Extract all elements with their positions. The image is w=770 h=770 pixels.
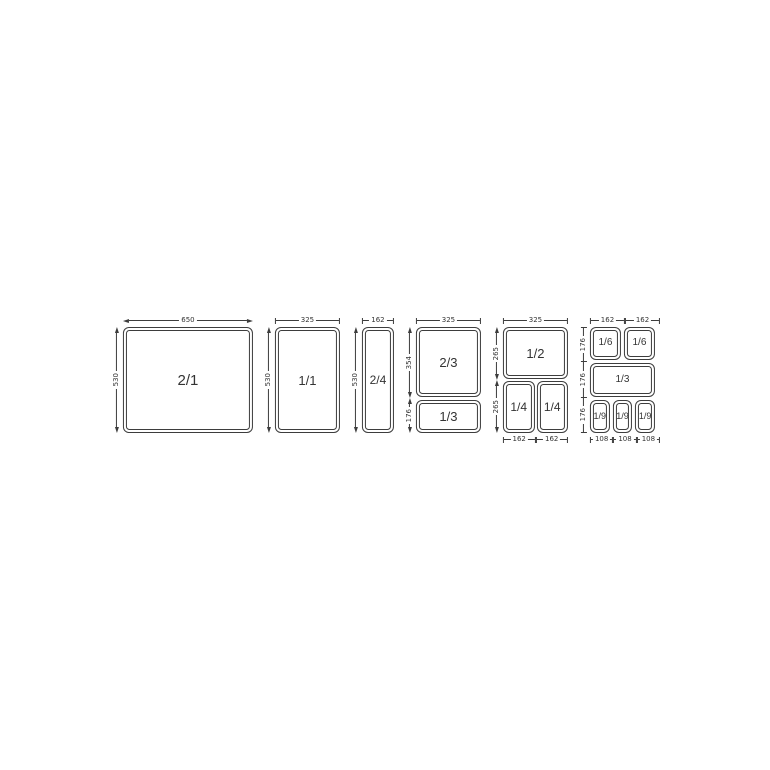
dimension-width-108: 108 <box>637 433 660 446</box>
dimension-label: 176 <box>406 407 413 424</box>
dimension-line <box>268 389 269 427</box>
dimension-label: 176 <box>580 336 587 353</box>
figure-gn-2-1: 650 530 2/1 <box>110 314 253 446</box>
arrow-down-icon <box>266 427 270 433</box>
pan-area: 2/3 1/3 <box>416 327 481 433</box>
pan-2-3: 2/3 <box>416 327 481 397</box>
dimension-tick <box>567 318 568 324</box>
dimension-label: 265 <box>493 398 500 415</box>
dimension-width-108: 108 <box>590 433 613 446</box>
dimension-line <box>496 386 497 398</box>
dimension-label: 162 <box>369 317 386 324</box>
dimension-line <box>544 320 567 321</box>
pan-size-label: 1/2 <box>526 347 544 360</box>
dimension-height-265: 265 <box>490 327 503 380</box>
top-dimension-row: 325 <box>416 314 481 327</box>
pan-size-label: 2/1 <box>178 373 199 388</box>
pan-size-label: 1/4 <box>544 401 561 413</box>
dimension-tick <box>567 437 568 443</box>
dimension-label: 530 <box>352 371 359 388</box>
dimension-line <box>496 333 497 345</box>
pan-1-4: 1/4 <box>503 381 535 433</box>
dimension-line <box>457 320 480 321</box>
dimension-width-162: 162 <box>362 314 394 327</box>
dimension-line <box>409 333 410 354</box>
dimension-width-162: 162 <box>535 433 568 446</box>
dimension-line <box>417 320 440 321</box>
dimension-height-176: 176 <box>577 362 590 397</box>
dimension-label: 176 <box>580 406 587 423</box>
dimension-tick <box>480 318 481 324</box>
pan-size-label: 1/4 <box>510 401 527 413</box>
dimension-line <box>626 320 634 321</box>
pan-area: 1/1 <box>275 327 340 433</box>
left-dimension-column: 530 <box>110 327 123 433</box>
pan-2-1: 2/1 <box>123 327 253 433</box>
dimension-line <box>583 388 584 396</box>
dimension-line <box>197 320 247 321</box>
dimension-line <box>116 333 117 371</box>
arrow-down-icon <box>114 427 118 433</box>
arrow-down-icon <box>494 427 498 433</box>
pan-1-3: 1/3 <box>590 363 655 398</box>
pan-1-9: 1/9 <box>590 400 610 433</box>
top-dimension-row: 162 162 <box>590 314 660 327</box>
left-dimension-column: 265 265 <box>490 327 503 433</box>
arrow-right-icon <box>247 319 253 323</box>
dimension-tick <box>393 318 394 324</box>
pan-area: 2/1 <box>123 327 253 433</box>
left-dimension-column: 176 176 176 <box>577 327 590 433</box>
dimension-line <box>583 398 584 406</box>
pan-row: 1/4 1/4 <box>503 381 568 433</box>
dimension-height-176: 176 <box>577 398 590 433</box>
dimension-width-108: 108 <box>613 433 636 446</box>
dimension-line <box>583 328 584 336</box>
figure-gn-2-4: 162 530 2/4 <box>349 314 394 446</box>
dimension-height-530: 530 <box>349 327 362 433</box>
dimension-line <box>496 415 497 427</box>
top-dimension-row: 325 <box>275 314 340 327</box>
dimension-label: 325 <box>440 317 457 324</box>
left-dimension-column: 530 <box>262 327 275 433</box>
pan-1-2: 1/2 <box>503 327 568 379</box>
dimension-line <box>276 320 299 321</box>
figure-gn-2-3-1-3: 325 354 176 <box>403 314 481 446</box>
dimension-width-162: 162 <box>590 314 625 327</box>
pan-area: 2/4 <box>362 327 394 433</box>
pan-row: 1/6 1/6 <box>590 327 655 360</box>
dimension-line <box>116 389 117 427</box>
dimension-width-162: 162 <box>625 314 660 327</box>
figure-gn-modular: 162 162 176 <box>577 314 660 446</box>
pan-size-label: 1/6 <box>632 338 646 348</box>
pan-1-4: 1/4 <box>536 381 568 433</box>
dimension-label: 162 <box>543 436 560 443</box>
pan-size-label: 1/3 <box>439 410 457 423</box>
top-dimension-row: 162 <box>362 314 394 327</box>
dimension-label: 325 <box>527 317 544 324</box>
pan-1-9: 1/9 <box>613 400 633 433</box>
pan-1-6: 1/6 <box>624 327 655 360</box>
dimension-width-650: 650 <box>123 314 253 327</box>
dimension-height-176: 176 <box>577 327 590 362</box>
pan-area: 1/2 1/4 1/4 <box>503 327 568 433</box>
dimension-line <box>583 424 584 432</box>
dimension-width-325: 325 <box>275 314 340 327</box>
pan-1-1: 1/1 <box>275 327 340 433</box>
pan-size-label: 1/9 <box>594 412 607 421</box>
dimension-height-530: 530 <box>262 327 275 433</box>
dimension-label: 265 <box>493 345 500 362</box>
dimension-line <box>504 320 527 321</box>
dimension-label: 530 <box>113 371 120 388</box>
pan-1-3: 1/3 <box>416 400 481 433</box>
pan-size-label: 1/9 <box>639 412 652 421</box>
dimension-line <box>355 333 356 371</box>
dimension-height-354: 354 <box>403 327 416 398</box>
bottom-dimension-row: 162 162 <box>503 433 568 446</box>
dimension-width-325: 325 <box>416 314 481 327</box>
dimension-label: 176 <box>580 371 587 388</box>
dimension-label: 162 <box>634 317 651 324</box>
top-dimension-row: 650 <box>123 314 253 327</box>
dimension-label: 108 <box>616 436 633 443</box>
dimension-height-176: 176 <box>403 398 416 433</box>
pan-size-label: 2/3 <box>439 356 457 369</box>
dimension-label: 325 <box>299 317 316 324</box>
dimension-height-265: 265 <box>490 380 503 433</box>
dimension-label: 650 <box>179 317 196 324</box>
dimension-line <box>409 371 410 392</box>
pan-2-4: 2/4 <box>362 327 394 433</box>
dimension-tick <box>580 432 586 433</box>
dimension-line <box>355 389 356 427</box>
dimension-tick <box>659 437 660 443</box>
dimension-line <box>268 333 269 371</box>
dimension-line <box>651 320 659 321</box>
bottom-dimension-row: 108 108 108 <box>590 433 660 446</box>
pan-size-label: 1/9 <box>616 412 629 421</box>
dimension-tick <box>339 318 340 324</box>
dimension-label: 162 <box>599 317 616 324</box>
dimension-line <box>129 320 179 321</box>
dimension-label: 354 <box>406 354 413 371</box>
page-canvas: 650 530 2/1 <box>0 0 770 770</box>
arrow-down-icon <box>407 427 411 433</box>
pan-row: 1/9 1/9 1/9 <box>590 400 655 433</box>
dimension-height-530: 530 <box>110 327 123 433</box>
dimension-width-325: 325 <box>503 314 568 327</box>
pan-size-label: 1/1 <box>298 374 316 387</box>
dimension-label: 530 <box>265 371 272 388</box>
dimension-line <box>591 320 599 321</box>
pan-area: 1/6 1/6 1/3 1/9 1/9 <box>590 327 655 433</box>
dimension-tick <box>659 318 660 324</box>
dimension-line <box>583 353 584 361</box>
figure-gn-1-2-1-4: 325 265 265 <box>490 314 568 446</box>
dimension-line <box>316 320 339 321</box>
gn-pan-size-diagram: 650 530 2/1 <box>110 314 660 446</box>
left-dimension-column: 354 176 <box>403 327 416 433</box>
figure-gn-1-1: 325 530 1/1 <box>262 314 340 446</box>
arrow-down-icon <box>353 427 357 433</box>
pan-size-label: 2/4 <box>370 374 387 386</box>
dimension-line <box>496 362 497 374</box>
pan-size-label: 1/6 <box>598 338 612 348</box>
dimension-label: 108 <box>593 436 610 443</box>
left-dimension-column: 530 <box>349 327 362 433</box>
top-dimension-row: 325 <box>503 314 568 327</box>
dimension-width-162: 162 <box>503 433 536 446</box>
dimension-line <box>616 320 624 321</box>
dimension-label: 108 <box>640 436 657 443</box>
pan-1-9: 1/9 <box>635 400 655 433</box>
pan-1-6: 1/6 <box>590 327 621 360</box>
pan-size-label: 1/3 <box>615 375 629 385</box>
dimension-line <box>583 362 584 370</box>
dimension-label: 162 <box>511 436 528 443</box>
